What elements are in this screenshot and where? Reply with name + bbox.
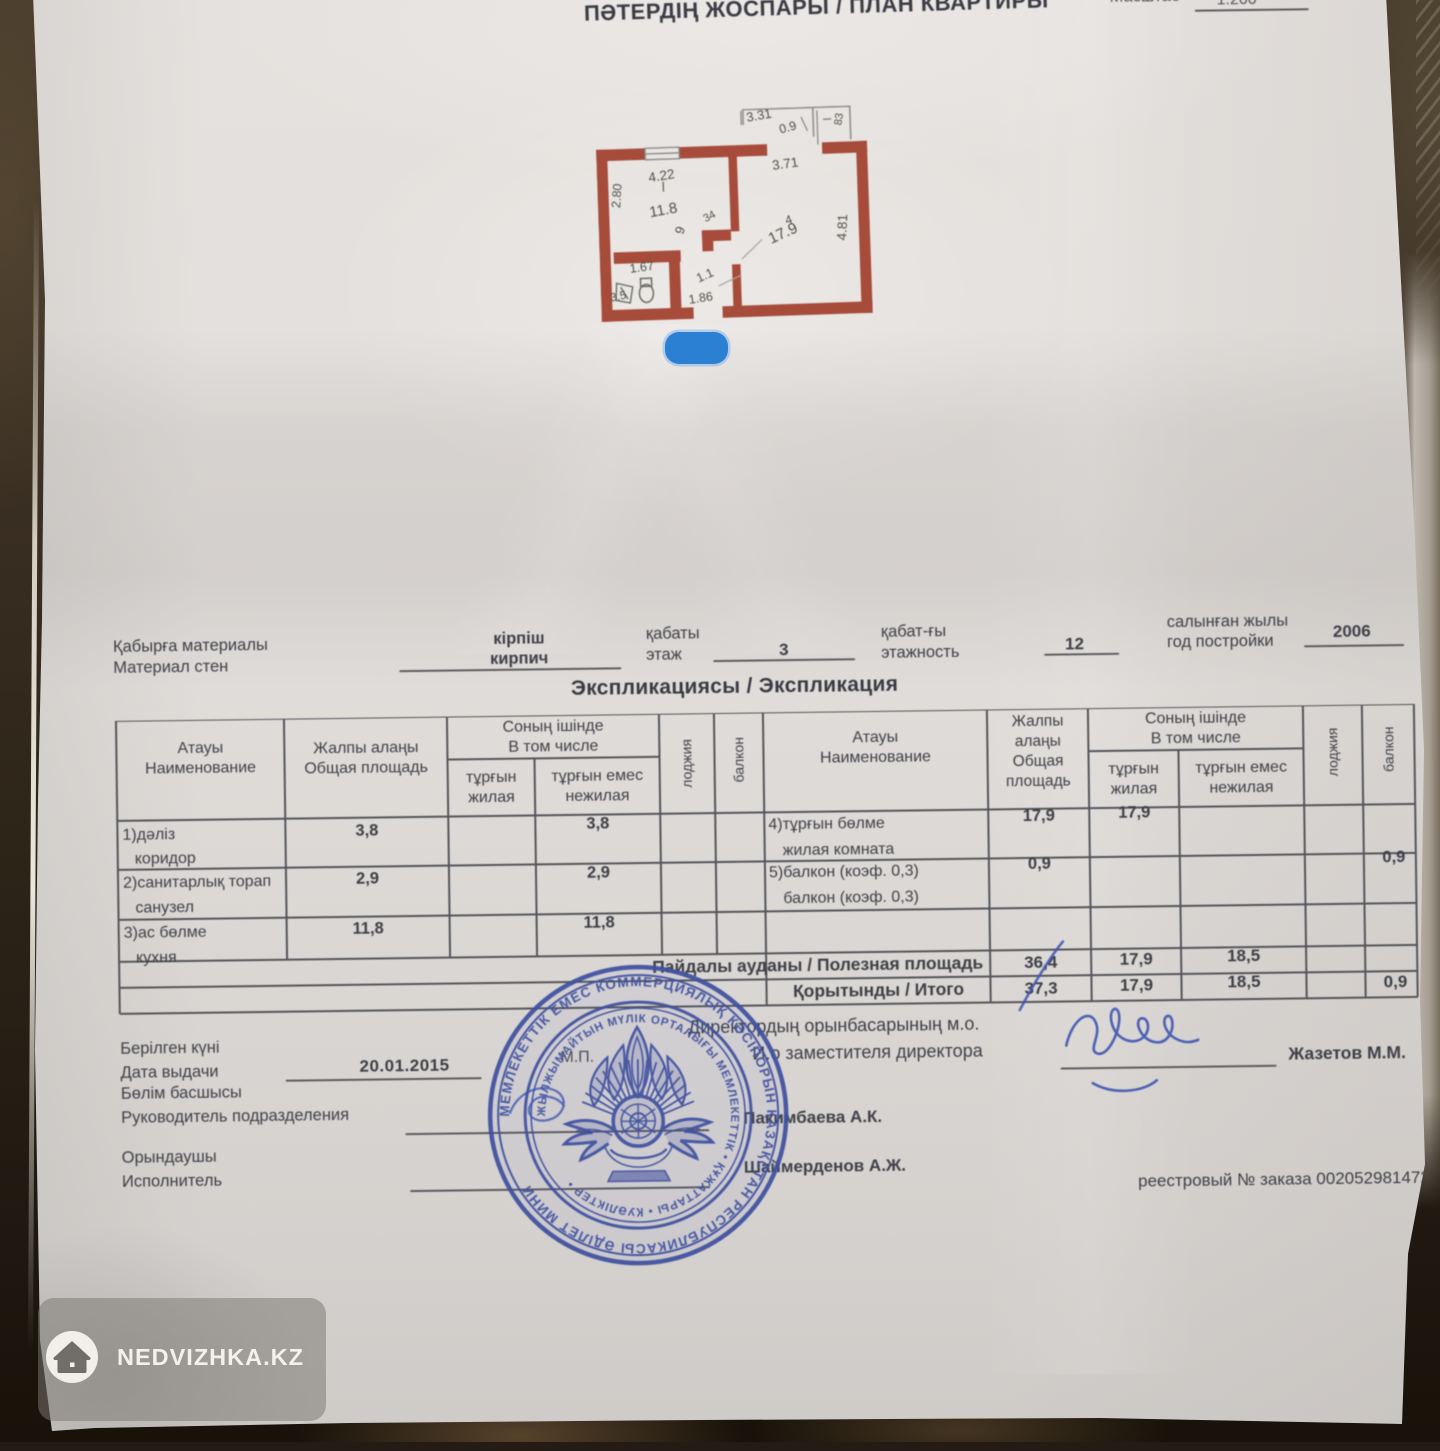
svg-text:1.67: 1.67 xyxy=(629,259,655,276)
svg-text:4.81: 4.81 xyxy=(834,214,850,241)
svg-text:9: 9 xyxy=(672,224,689,236)
svg-text:3.31: 3.31 xyxy=(745,106,773,125)
svg-text:0.9: 0.9 xyxy=(778,118,799,136)
svg-text:4.22: 4.22 xyxy=(647,166,675,185)
svg-text:34: 34 xyxy=(701,209,717,225)
svg-text:3.71: 3.71 xyxy=(771,154,799,172)
svg-text:2.80: 2.80 xyxy=(609,183,625,208)
svg-text:1.86: 1.86 xyxy=(688,289,714,307)
svg-text:1.1: 1.1 xyxy=(694,265,716,285)
svg-text:83: 83 xyxy=(832,112,846,126)
svg-text:11.8: 11.8 xyxy=(648,200,679,222)
svg-text:17.9: 17.9 xyxy=(766,220,801,248)
